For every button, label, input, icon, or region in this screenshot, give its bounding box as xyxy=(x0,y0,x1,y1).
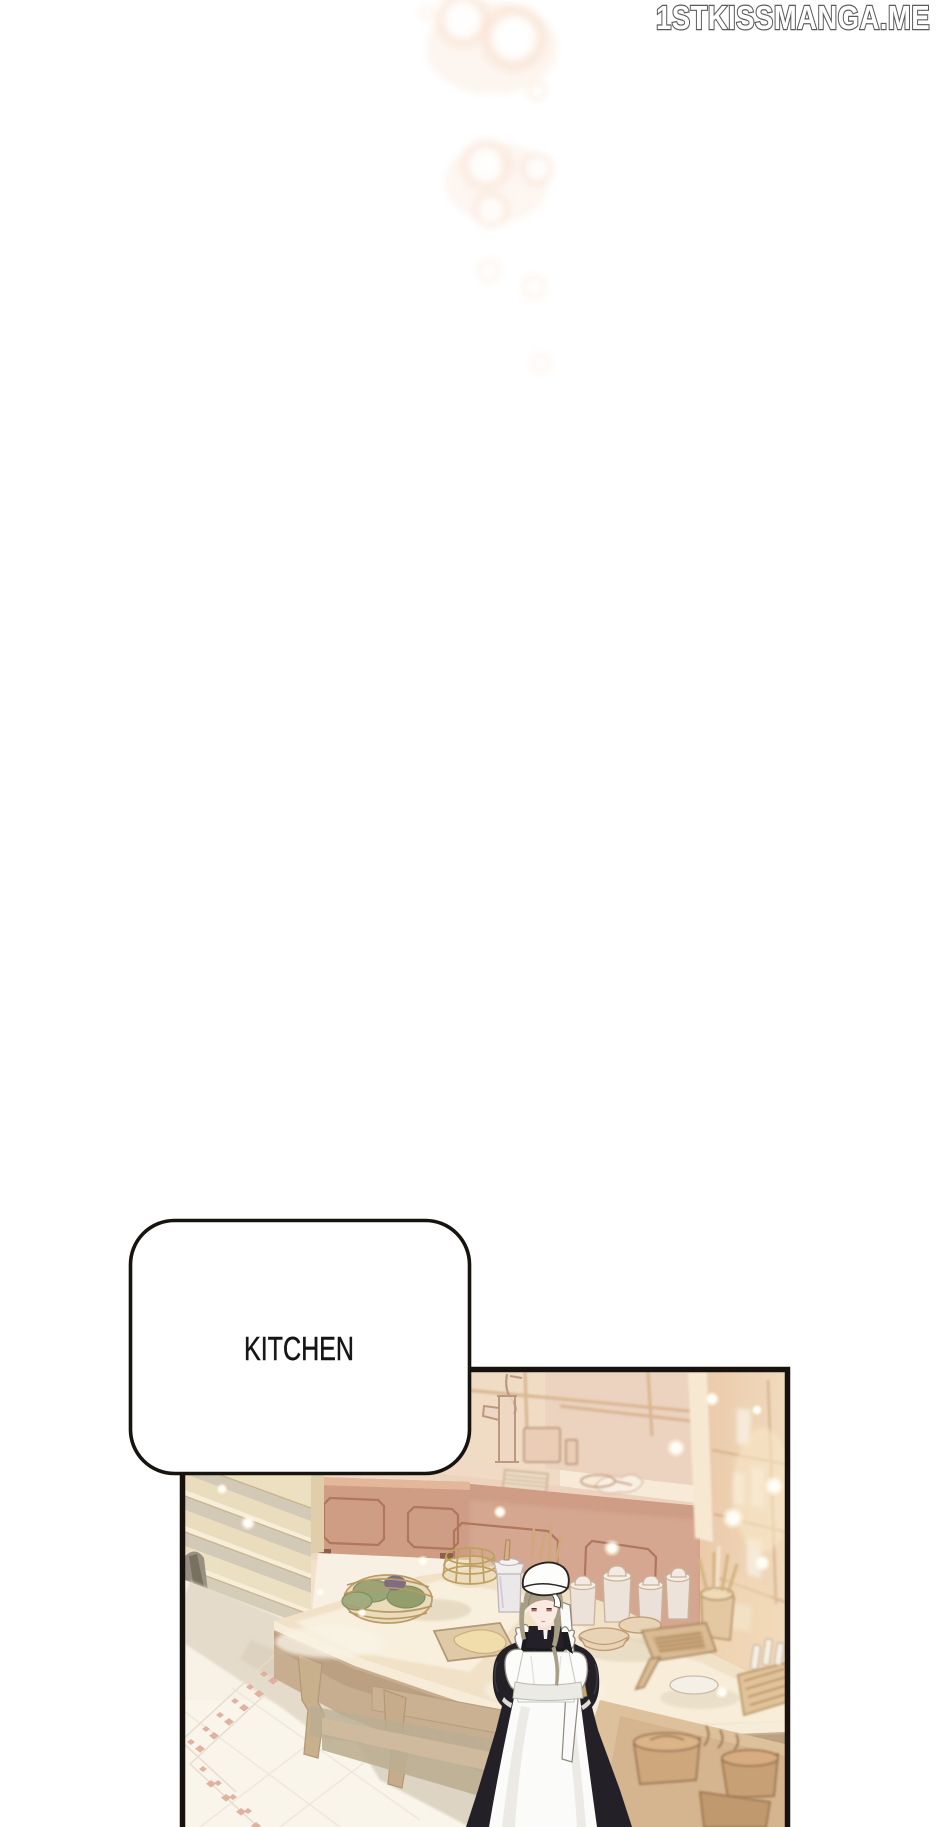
svg-text:KITCHEN: KITCHEN xyxy=(244,1331,354,1368)
svg-text:1STKISSMANGA.ME: 1STKISSMANGA.ME xyxy=(656,0,930,36)
